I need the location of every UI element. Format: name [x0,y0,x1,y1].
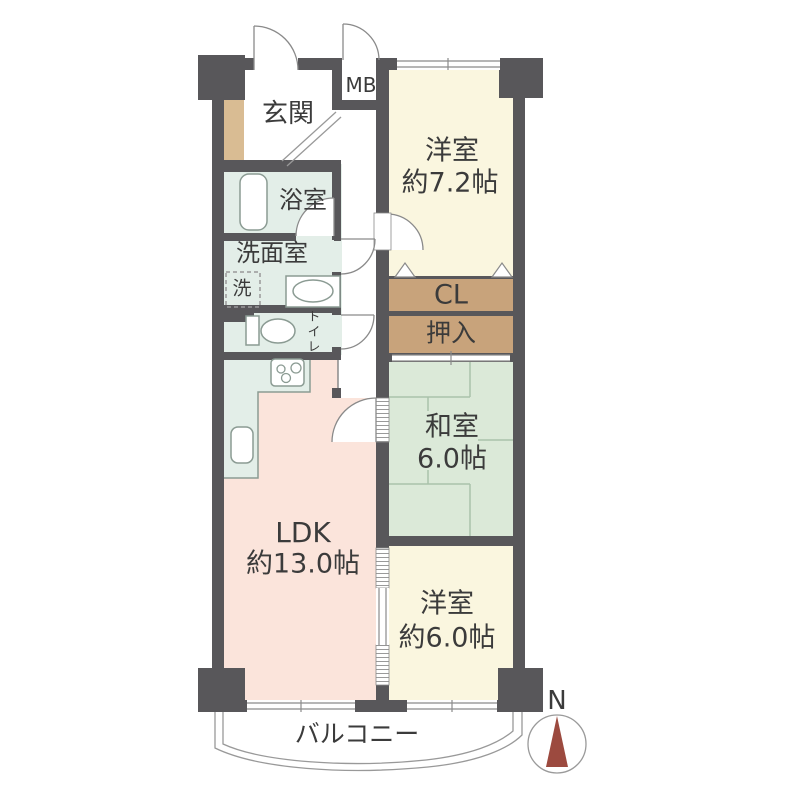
toilet-bowl [261,319,295,343]
column-top-left [198,55,245,100]
label-western-room-2-name: 洋室 [420,591,474,618]
label-compass-north: N [547,688,566,714]
japanese-room-sliding-door [376,398,389,442]
compass [528,715,586,773]
ldk-western2-sliding-door [376,588,389,645]
label-bathroom: 浴室 [279,188,327,212]
label-meter-box: MB [346,75,377,95]
label-western-room-1-size: 約7.2帖 [402,170,499,197]
label-washroom: 洗面室 [236,241,308,265]
column-bottom-right [498,668,543,712]
label-western-room-2-size: 約6.0帖 [399,625,496,652]
label-closet: CL [434,282,468,309]
column-bottom-left [198,668,245,712]
floorplan-canvas: 玄関 MB 洋室 約7.2帖 浴室 洗面室 洗 トイレ CL 押入 和室 6.0… [0,0,800,800]
label-oshiire: 押入 [426,321,476,346]
bathtub [240,174,267,230]
label-entrance: 玄関 [262,101,314,127]
floorplan-drawing [0,0,800,800]
label-japanese-room-size: 6.0帖 [417,446,487,473]
entrance-step-strip [224,97,244,160]
label-balcony: バルコニー [295,722,420,747]
label-ldk-name: LDK [275,519,331,547]
label-japanese-room-name: 和室 [425,414,479,441]
kitchen-sink [231,427,253,463]
label-ldk-size: 約13.0帖 [246,551,360,578]
column-top-right [499,58,543,98]
label-toilet: トイレ [306,310,319,355]
toilet-tank [246,316,259,345]
label-western-room-1-name: 洋室 [425,138,479,165]
label-washer: 洗 [232,280,251,299]
washbasin-bowl [293,280,333,302]
